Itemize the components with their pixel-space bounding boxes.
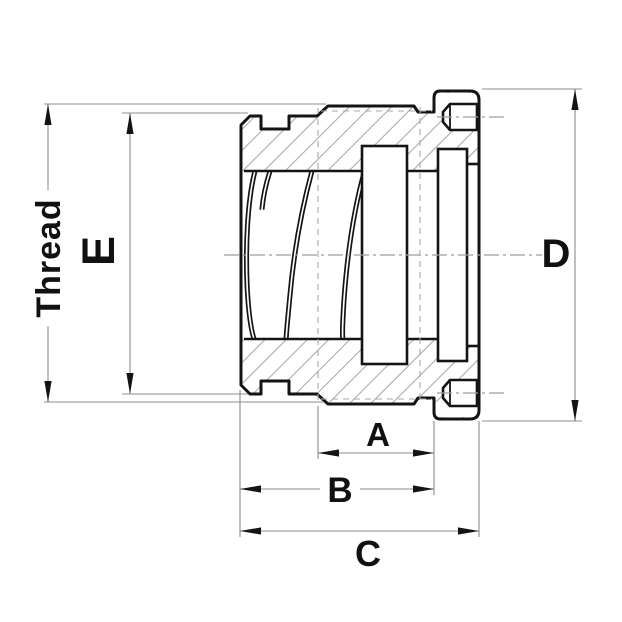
- dimension-label-c: C: [355, 533, 381, 574]
- dimension-label-a: A: [366, 416, 390, 453]
- drawing-background: [0, 0, 622, 622]
- technical-drawing-canvas: Thread E D A B C: [0, 0, 622, 622]
- dimension-label-b: B: [327, 471, 352, 510]
- dimension-label-thread: Thread: [30, 198, 68, 317]
- dimension-label-e: E: [73, 236, 124, 266]
- dimension-label-d: D: [542, 232, 571, 276]
- technical-drawing-page: Thread E D A B C: [0, 0, 622, 622]
